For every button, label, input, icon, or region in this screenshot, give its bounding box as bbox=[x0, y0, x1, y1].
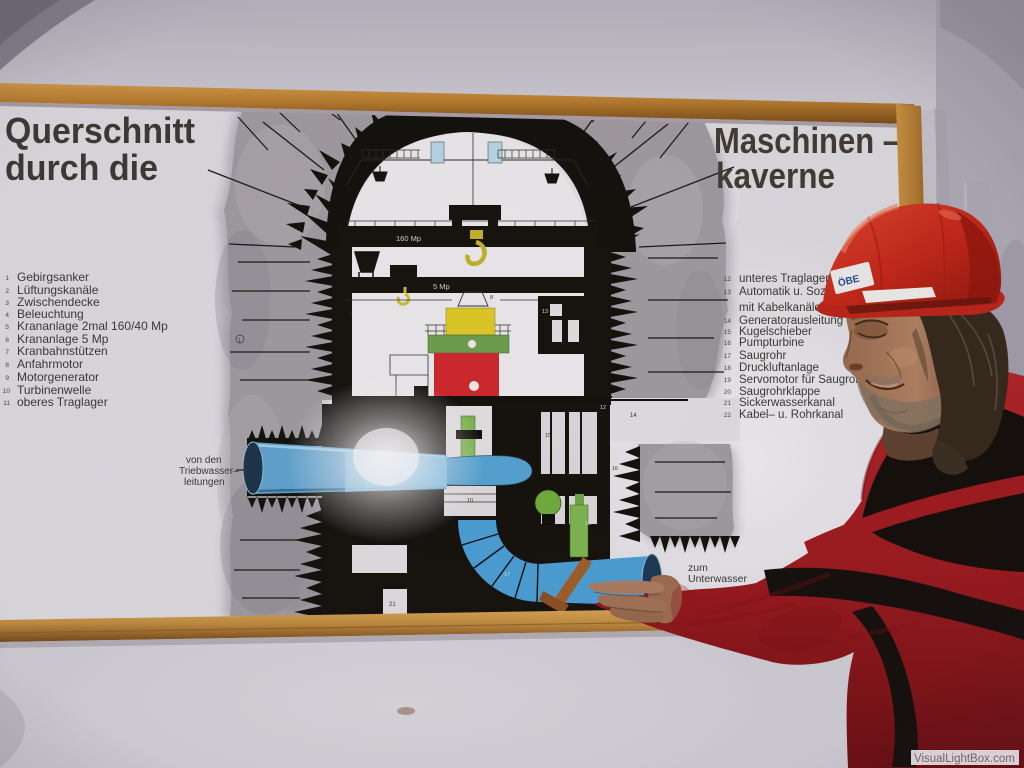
svg-text:Sickerwasserkanal: Sickerwasserkanal bbox=[739, 397, 835, 409]
svg-text:Druckluftanlage: Druckluftanlage bbox=[739, 362, 819, 374]
svg-text:18: 18 bbox=[724, 365, 732, 372]
svg-text:1: 1 bbox=[238, 338, 241, 344]
svg-text:Saugrohr: Saugrohr bbox=[739, 350, 786, 362]
svg-text:Anfahrmotor: Anfahrmotor bbox=[17, 357, 83, 371]
svg-text:20: 20 bbox=[724, 389, 732, 396]
svg-text:6: 6 bbox=[5, 337, 9, 344]
svg-text:21: 21 bbox=[389, 602, 396, 608]
svg-text:Motorgenerator: Motorgenerator bbox=[17, 370, 99, 384]
svg-text:15: 15 bbox=[724, 329, 732, 336]
svg-text:Servomotor für Saugrohr: Servomotor für Saugrohr bbox=[739, 374, 866, 386]
svg-text:unteres Traglager: unteres Traglager bbox=[739, 273, 829, 285]
svg-text:Gebirgsanker: Gebirgsanker bbox=[17, 270, 89, 284]
svg-text:19: 19 bbox=[724, 377, 732, 384]
svg-text:Kranbahnstützen: Kranbahnstützen bbox=[17, 344, 108, 358]
svg-text:7: 7 bbox=[5, 349, 9, 356]
svg-text:VisualLightBox.com: VisualLightBox.com bbox=[914, 753, 1015, 765]
svg-text:8: 8 bbox=[5, 362, 9, 369]
svg-text:Triebwasser–: Triebwasser– bbox=[179, 466, 239, 477]
svg-text:kaverne: kaverne bbox=[716, 155, 835, 196]
svg-text:19: 19 bbox=[585, 521, 591, 527]
svg-text:21: 21 bbox=[724, 400, 732, 407]
svg-text:160 Mp: 160 Mp bbox=[396, 234, 421, 243]
svg-text:4: 4 bbox=[5, 312, 9, 319]
svg-text:2: 2 bbox=[5, 288, 9, 295]
svg-text:Kabel– u. Rohrkanal: Kabel– u. Rohrkanal bbox=[739, 409, 843, 421]
svg-text:12: 12 bbox=[724, 276, 732, 283]
svg-text:14: 14 bbox=[724, 318, 732, 325]
svg-text:16: 16 bbox=[612, 466, 618, 472]
svg-text:5: 5 bbox=[5, 324, 9, 331]
svg-text:mit Kabelkanälen: mit Kabelkanälen bbox=[739, 302, 827, 314]
svg-text:3: 3 bbox=[5, 300, 9, 307]
svg-text:22: 22 bbox=[724, 412, 732, 419]
svg-text:10: 10 bbox=[3, 388, 11, 395]
svg-text:9: 9 bbox=[5, 375, 9, 382]
svg-text:5 Mp: 5 Mp bbox=[433, 282, 450, 291]
svg-text:Unterwasser: Unterwasser bbox=[688, 573, 747, 585]
svg-text:13: 13 bbox=[724, 289, 732, 296]
svg-text:Krananlage 2mal 160/40 Mp: Krananlage 2mal 160/40 Mp bbox=[17, 319, 168, 333]
svg-text:von den: von den bbox=[186, 455, 222, 466]
svg-text:11: 11 bbox=[3, 400, 10, 407]
svg-text:12: 12 bbox=[600, 405, 606, 411]
svg-text:17: 17 bbox=[504, 572, 510, 578]
svg-text:Pumpturbine: Pumpturbine bbox=[739, 337, 804, 349]
svg-text:17: 17 bbox=[724, 353, 732, 360]
svg-text:8: 8 bbox=[490, 295, 493, 301]
svg-text:13: 13 bbox=[542, 309, 548, 315]
svg-text:10: 10 bbox=[467, 498, 473, 504]
svg-text:oberes Traglager: oberes Traglager bbox=[17, 395, 108, 409]
svg-text:16: 16 bbox=[724, 340, 732, 347]
svg-text:durch die: durch die bbox=[5, 147, 158, 188]
svg-text:1: 1 bbox=[5, 275, 9, 282]
svg-text:Querschnitt: Querschnitt bbox=[5, 110, 195, 151]
svg-text:7: 7 bbox=[349, 313, 352, 319]
svg-text:15: 15 bbox=[545, 433, 551, 439]
svg-text:leitungen: leitungen bbox=[184, 477, 225, 488]
svg-text:14: 14 bbox=[630, 413, 637, 419]
